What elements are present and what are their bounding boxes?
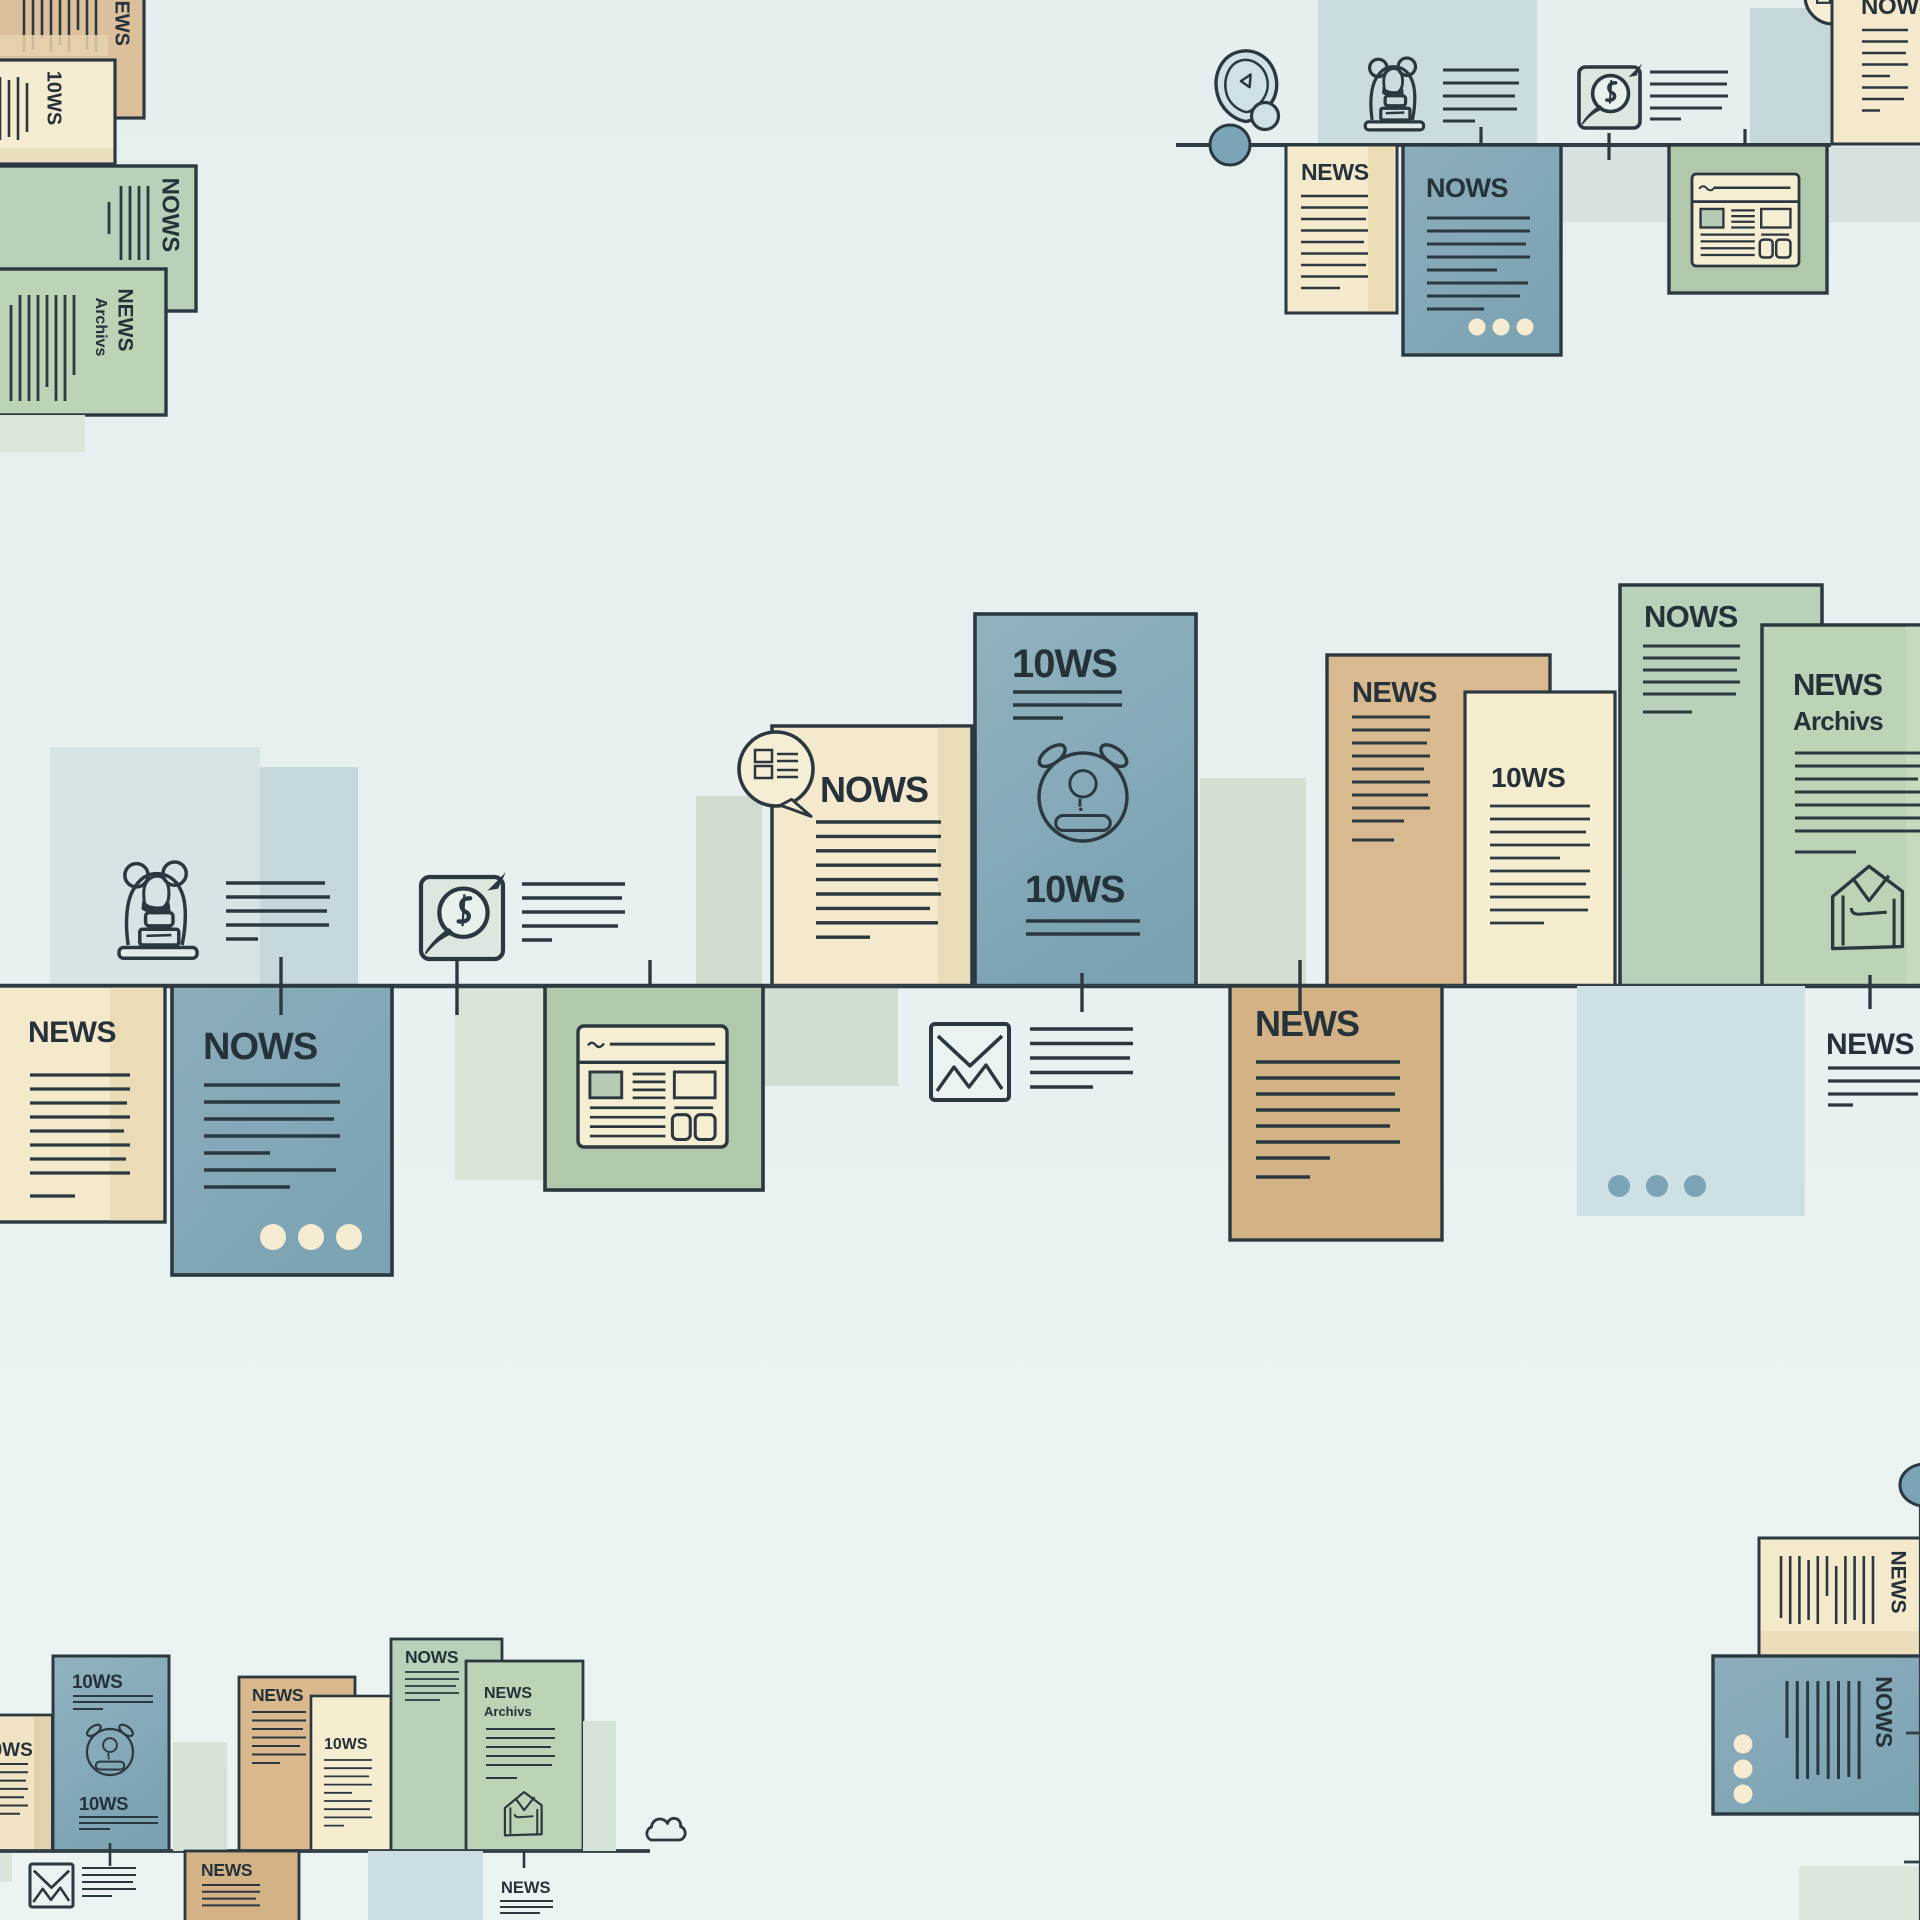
svg-text:NOWS: NOWS xyxy=(405,1647,458,1667)
svg-text:NEWS: NEWS xyxy=(1301,159,1369,185)
svg-text:NEWS: NEWS xyxy=(1886,1551,1909,1614)
svg-text:NEWS: NEWS xyxy=(252,1685,303,1705)
svg-text:10WS: 10WS xyxy=(1012,642,1117,686)
svg-text:NEWS: NEWS xyxy=(501,1879,551,1897)
svg-text:NOWS: NOWS xyxy=(1644,599,1738,634)
svg-text:NEWS: NEWS xyxy=(1255,1003,1359,1044)
svg-text:10WS: 10WS xyxy=(324,1736,368,1753)
svg-text:NOWS: NOWS xyxy=(157,178,184,253)
svg-text:NOWS: NOWS xyxy=(1861,0,1920,20)
svg-text:NOWS: NOWS xyxy=(203,1026,317,1068)
svg-text:10WS: 10WS xyxy=(72,1672,123,1693)
svg-text:NEWS: NEWS xyxy=(1352,677,1437,709)
svg-text:NEWS: NEWS xyxy=(111,0,133,46)
svg-text:10WS: 10WS xyxy=(0,1740,33,1761)
svg-text:NEWS: NEWS xyxy=(201,1860,252,1880)
svg-text:10WS: 10WS xyxy=(43,71,65,125)
svg-text:NEWS: NEWS xyxy=(1793,667,1882,702)
svg-text:10WS: 10WS xyxy=(1491,762,1565,793)
svg-text:Archivs: Archivs xyxy=(92,298,109,357)
svg-text:NOWS: NOWS xyxy=(1871,1676,1897,1748)
svg-text:NEWS: NEWS xyxy=(28,1016,116,1049)
svg-text:NEWS: NEWS xyxy=(113,289,136,352)
svg-text:Archivs: Archivs xyxy=(1793,706,1883,736)
svg-text:NOWS: NOWS xyxy=(1426,173,1508,203)
svg-text:Archivs: Archivs xyxy=(484,1704,532,1719)
svg-text:NEWS: NEWS xyxy=(1826,1028,1914,1061)
svg-text:10WS: 10WS xyxy=(79,1793,128,1814)
svg-text:NOWS: NOWS xyxy=(820,769,928,810)
svg-text:10WS: 10WS xyxy=(1025,869,1124,911)
svg-text:NEWS: NEWS xyxy=(484,1685,532,1702)
